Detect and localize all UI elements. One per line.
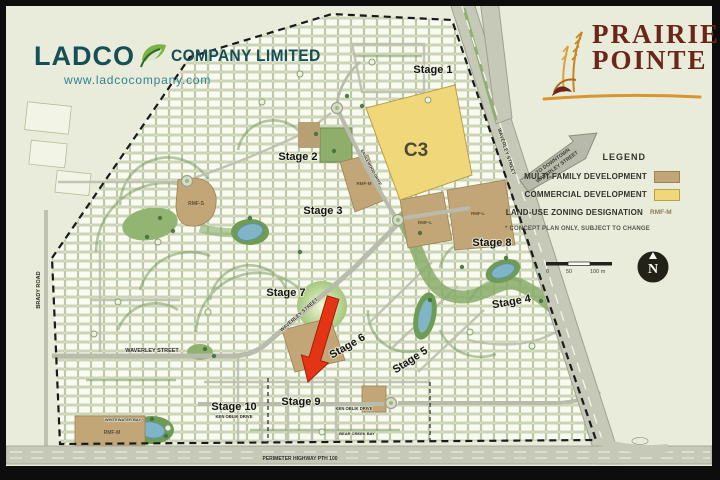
zoning-label-rmf-m-southwest: RMF-M — [104, 430, 121, 436]
zoning-label-rmf-l-1: RMF-L — [418, 220, 432, 225]
street-label-bear-creek-bay: BEAR CREEK BAY — [339, 431, 375, 436]
prairie-pointe-logo: PRAIRIE POINTE — [548, 22, 713, 73]
multi-family-swatch — [654, 171, 680, 183]
scale-bar: 0 50 100 m — [544, 259, 622, 276]
legend-row-multi-family: MULTI-FAMILY DEVELOPMENT — [465, 170, 680, 183]
zoning-label-rmf-m-west: RMF-M — [357, 181, 372, 186]
logo-underline-swoosh — [542, 92, 702, 102]
stage-label-7: Stage 7 — [266, 287, 305, 299]
c3-parcel-label: C3 — [404, 140, 428, 161]
ladco-leaf-icon — [138, 40, 168, 72]
scale-tick-100: 100 m — [590, 269, 606, 275]
stage-label-3: Stage 3 — [303, 205, 342, 217]
zoning-label-rmf-s: RMF-S — [188, 201, 204, 207]
wheat-icon — [548, 26, 592, 98]
compass-n: N — [648, 262, 658, 277]
street-label-waverley-west: WAVERLEY STREET — [125, 348, 179, 354]
north-compass-icon: N — [634, 248, 672, 286]
scale-tick-50: 50 — [566, 269, 572, 275]
ladco-suffix: COMPANY LIMITED — [171, 46, 321, 66]
prairie-pointe-line1: PRAIRIE — [592, 22, 713, 48]
ladco-logo: LADCO COMPANY LIMITED www.ladcocompany.c… — [34, 40, 334, 87]
screenshot-frame: TO DOWNTOWN WAVERLEY STREET WAVERLEY STR… — [0, 0, 720, 480]
street-label-ken-oblik-2: KEN OBLIK DRIVE — [336, 406, 373, 411]
scale-tick-0: 0 — [546, 269, 549, 275]
legend-label-commercial: COMMERCIAL DEVELOPMENT — [525, 190, 647, 199]
ladco-name: LADCO — [34, 41, 135, 72]
legend-label-zoning: LAND-USE ZONING DESIGNATION — [506, 208, 643, 217]
stage-label-9: Stage 9 — [281, 396, 320, 408]
stage-label-2: Stage 2 — [278, 151, 317, 163]
ladco-url: www.ladcocompany.com — [64, 73, 334, 87]
legend-title: LEGEND — [465, 152, 646, 162]
stage-label-10: Stage 10 — [211, 401, 256, 413]
legend: LEGEND MULTI-FAMILY DEVELOPMENT COMMERCI… — [465, 152, 680, 286]
street-label-ken-oblik-1: KEN OBLIK DRIVE — [216, 414, 253, 419]
street-label-whitewater-bay: WHITEWATER BAY — [105, 417, 142, 422]
legend-label-multi-family: MULTI-FAMILY DEVELOPMENT — [524, 172, 647, 181]
commercial-swatch — [654, 189, 680, 201]
legend-zoning-sample: RMF-M — [650, 209, 680, 216]
street-label-perimeter-highway: PERIMETER HIGHWAY PTH 100 — [262, 456, 337, 462]
prairie-pointe-line2: POINTE — [592, 48, 713, 74]
street-label-brady-road: BRADY ROAD — [36, 271, 42, 308]
stage-label-1: Stage 1 — [413, 64, 452, 76]
legend-note: * CONCEPT PLAN ONLY, SUBJECT TO CHANGE — [465, 226, 650, 232]
legend-row-zoning: LAND-USE ZONING DESIGNATION RMF-M — [465, 206, 680, 219]
legend-row-commercial: COMMERCIAL DEVELOPMENT — [465, 188, 680, 201]
